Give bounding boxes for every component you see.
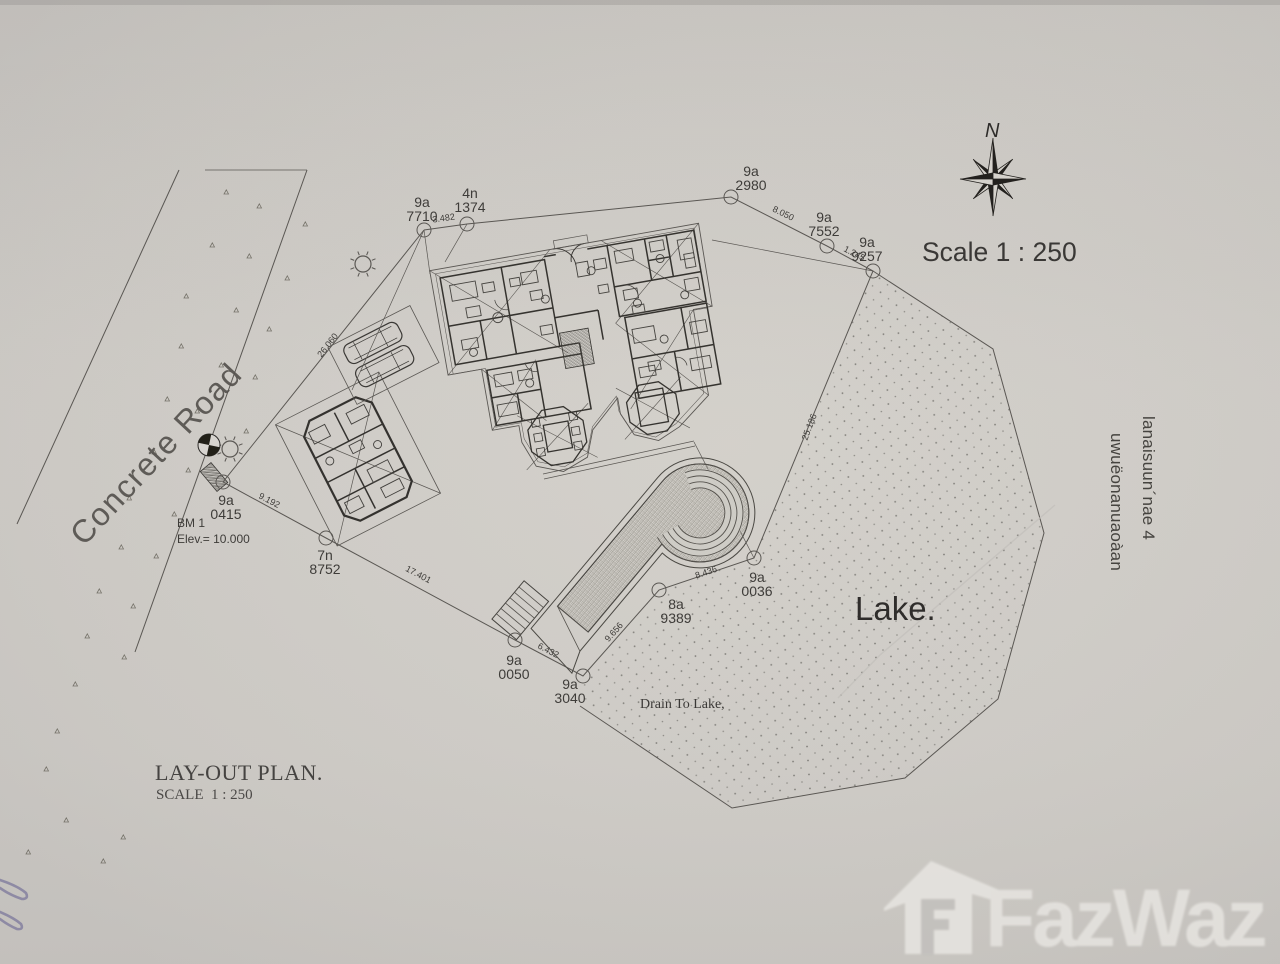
svg-text:Drain To Lake,: Drain To Lake, (640, 697, 725, 712)
svg-text:0036: 0036 (741, 583, 772, 599)
svg-text:8752: 8752 (309, 561, 340, 577)
svg-text:Elev.= 10.000: Elev.= 10.000 (177, 532, 250, 546)
svg-text:FazWaz: FazWaz (985, 873, 1266, 964)
svg-text:1374: 1374 (454, 199, 485, 215)
svg-text:SCALE 1 : 250: SCALE 1 : 250 (156, 787, 253, 803)
svg-text:uwuëonanuaoàan: uwuëonanuaoàan (1107, 433, 1126, 571)
svg-text:0415: 0415 (210, 506, 241, 522)
svg-text:7552: 7552 (808, 223, 839, 239)
svg-text:3040: 3040 (554, 690, 585, 706)
svg-text:9389: 9389 (660, 610, 691, 626)
svg-text:0050: 0050 (498, 666, 529, 682)
svg-text:LAY-OUT PLAN.: LAY-OUT PLAN. (155, 760, 323, 785)
svg-text:BM 1: BM 1 (177, 516, 205, 530)
svg-text:Scale 1 : 250: Scale 1 : 250 (922, 237, 1077, 267)
svg-text:Lake.: Lake. (855, 590, 936, 627)
svg-text:2980: 2980 (735, 177, 766, 193)
svg-text:lanaisuun´nae 4: lanaisuun´nae 4 (1139, 416, 1158, 540)
